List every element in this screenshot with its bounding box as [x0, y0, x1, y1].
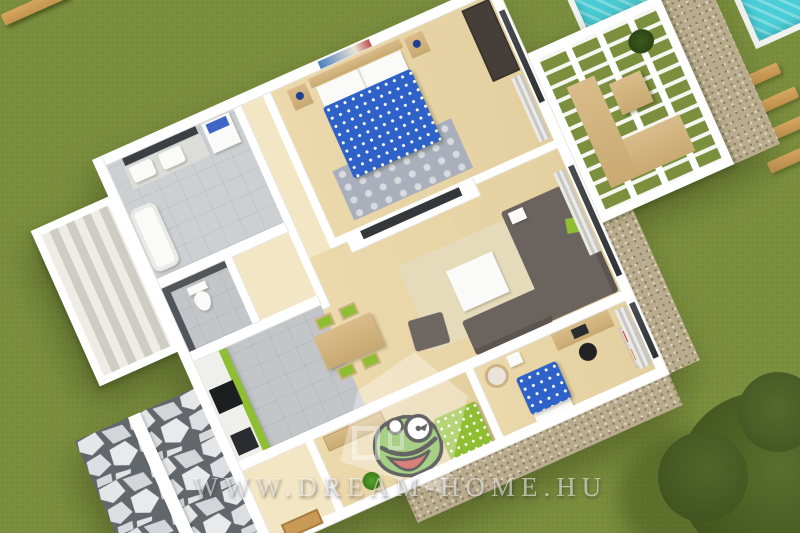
watermark-logo-letter	[352, 426, 380, 460]
watermark-text: WWW.DREAM-HOME.HU	[0, 472, 800, 503]
wood-plank-path	[1, 0, 70, 26]
render-canvas: WWW.DREAM-HOME.HU	[0, 0, 800, 533]
watermark-logo-letter	[388, 430, 404, 450]
bush	[624, 25, 658, 58]
swimming-pool-corner	[729, 0, 800, 49]
tree-canopy	[648, 372, 800, 533]
